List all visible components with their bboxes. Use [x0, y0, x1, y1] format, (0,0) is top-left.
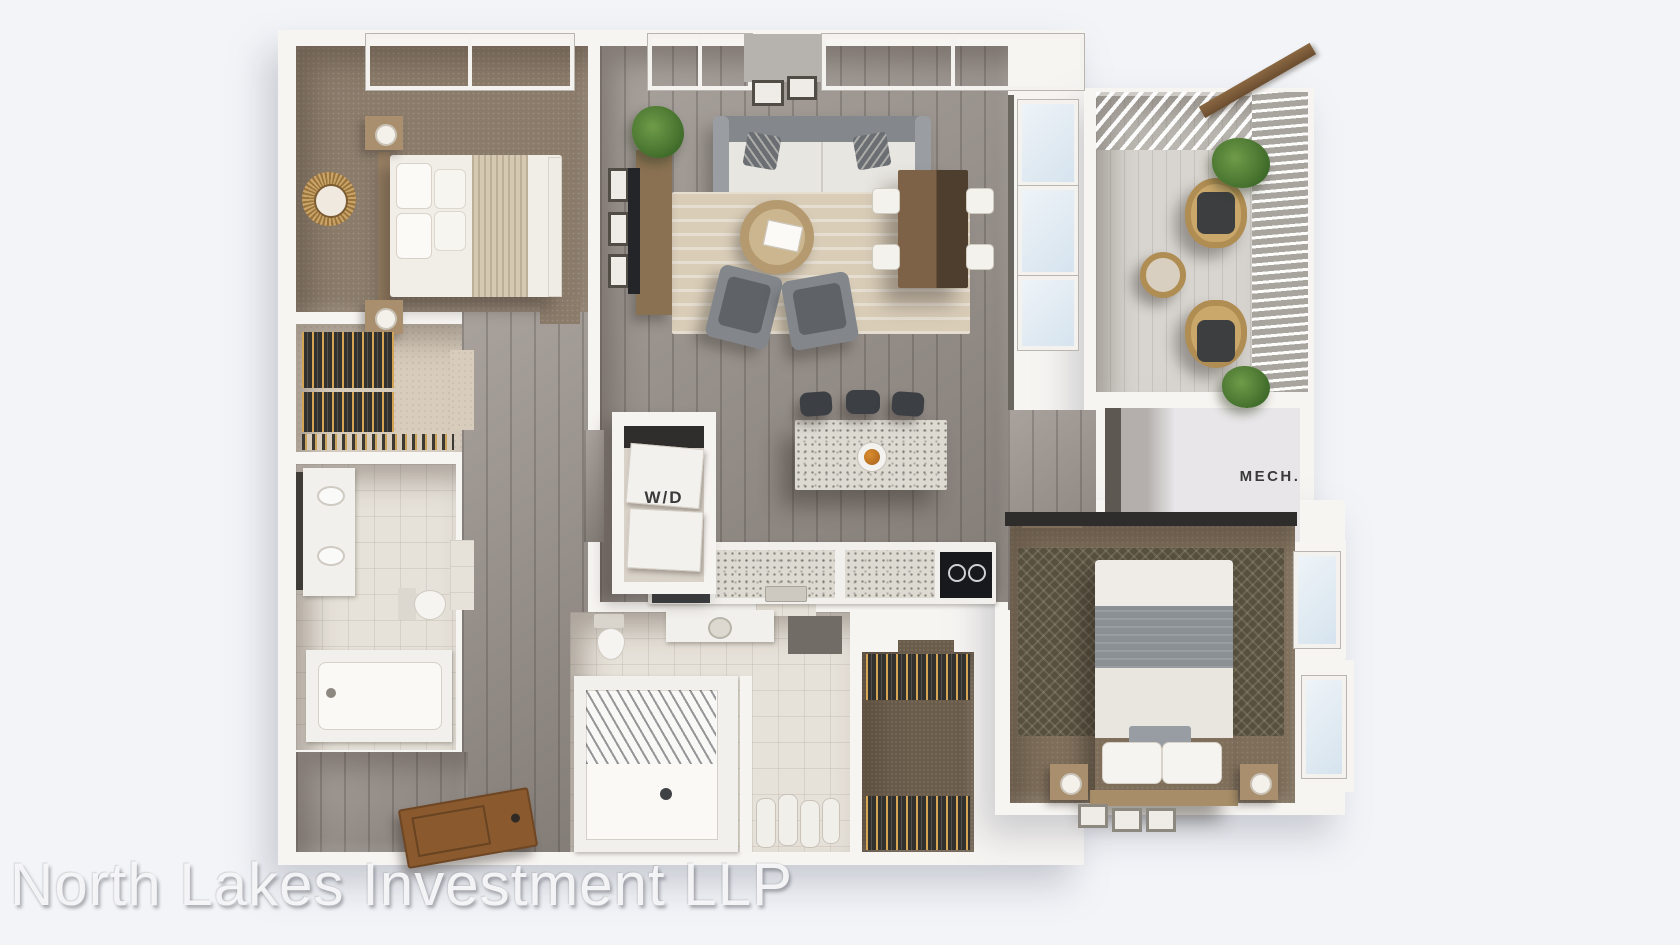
- kitchen-island: [795, 420, 947, 490]
- kitchen-sink-icon: [765, 586, 807, 602]
- balcony-door-window: [1018, 100, 1078, 186]
- sunburst-mirror-icon: [302, 172, 356, 226]
- bed1-footboard: [548, 157, 562, 297]
- bathtub2-glass-panel: [586, 690, 716, 764]
- coffee-table: [740, 200, 814, 274]
- armchair: [780, 271, 859, 352]
- dining-chair: [872, 188, 900, 214]
- bed2-pillow: [1162, 742, 1222, 784]
- burner: [968, 564, 986, 582]
- armchair-seat: [717, 275, 772, 334]
- lamp-icon: [1060, 773, 1082, 795]
- wall-art-frame: [608, 254, 629, 288]
- wicker-chair-cushion: [1197, 320, 1235, 362]
- toilet-icon: [594, 614, 624, 628]
- plant-icon: [632, 106, 684, 158]
- sink-icon: [317, 486, 345, 506]
- shower-head-icon: [660, 788, 672, 800]
- bed2-pillow: [1102, 742, 1162, 784]
- fruit-bowl-icon: [857, 442, 887, 472]
- closet1-hanging-clothes: [302, 332, 394, 388]
- leaning-frame: [1078, 804, 1108, 828]
- dining-chair: [966, 244, 994, 270]
- rolled-towel: [778, 794, 798, 846]
- sunburst-mirror-glass: [314, 184, 348, 218]
- bedroom2-window: [1302, 676, 1346, 778]
- wicker-chair: [1185, 300, 1247, 368]
- lamp-icon: [1250, 773, 1272, 795]
- bed2-foot-section: [1095, 560, 1233, 608]
- bed1: [390, 155, 562, 297]
- faucet-icon: [326, 688, 336, 698]
- wall-art-frame: [608, 168, 629, 202]
- bar-stool: [846, 390, 880, 414]
- nightstand2-right: [1240, 764, 1278, 800]
- plant-icon: [1222, 366, 1270, 408]
- shower-mat: [788, 616, 842, 654]
- armchair-seat: [792, 282, 847, 336]
- living-wall-header: [744, 34, 822, 82]
- throw-pillow: [852, 131, 891, 170]
- bathroom2-vanity: [666, 610, 774, 642]
- nightstand2-left: [1050, 764, 1088, 800]
- wall-art-frame: [787, 76, 817, 100]
- closet1-hanging-clothes: [302, 392, 394, 432]
- bathroom2-partition-wall: [740, 676, 752, 852]
- sink-icon: [317, 546, 345, 566]
- bed2: [1095, 560, 1233, 806]
- wicker-chair-cushion: [1197, 192, 1235, 234]
- tv-console: [636, 150, 672, 315]
- bed2-headboard: [1090, 790, 1238, 806]
- dining-table: [898, 170, 968, 288]
- tv-icon: [628, 168, 640, 294]
- floor-plan-rendering: W/D MECH.: [0, 0, 1680, 945]
- bedroom1-doorway: [540, 298, 580, 324]
- bathroom1-doorway: [450, 540, 474, 610]
- closet1-shoe-row: [302, 434, 454, 450]
- dining-chair: [872, 244, 900, 270]
- lamp-icon: [375, 308, 397, 330]
- bedroom1-window: [366, 34, 574, 90]
- leaning-frame: [1146, 808, 1176, 832]
- bed1-pillow: [396, 163, 432, 209]
- balcony-door-window: [1018, 276, 1078, 350]
- washer-dryer-label: W/D: [622, 488, 706, 508]
- burner: [948, 564, 966, 582]
- bed1-headboard: [378, 152, 390, 302]
- living-hall-opening: [584, 430, 604, 542]
- bathtub2: [574, 676, 738, 852]
- watermark-text: North Lakes Investment LLP: [10, 850, 793, 919]
- nightstand1-bottom: [365, 300, 403, 334]
- wicker-side-table: [1140, 252, 1186, 298]
- balcony-door-window: [1018, 186, 1078, 276]
- dining-chair: [966, 188, 994, 214]
- bar-stool: [891, 391, 925, 417]
- bathroom1-mirror: [296, 472, 303, 590]
- bed1-blanket: [472, 155, 528, 297]
- wicker-chair: [1185, 178, 1247, 248]
- living-right-wall-shadow: [1008, 95, 1014, 410]
- cooktop-icon: [940, 552, 992, 598]
- book: [763, 220, 804, 253]
- bed1-pillow: [434, 211, 466, 251]
- plant-icon: [1212, 138, 1270, 188]
- bed2-gray-blanket: [1095, 606, 1233, 668]
- living-window-right: [822, 34, 1084, 90]
- balcony-railing: [1252, 92, 1308, 392]
- rolled-towel: [800, 800, 820, 848]
- leaning-frame: [1112, 808, 1142, 832]
- nightstand1-top: [365, 116, 403, 150]
- walkin-closet-clothes-bottom: [866, 796, 970, 850]
- bathroom1-vanity: [303, 468, 355, 596]
- closet1-doorway: [450, 350, 474, 430]
- counter-terrazzo: [845, 550, 935, 598]
- living-window-left: [648, 34, 752, 90]
- bar-stool: [799, 391, 833, 417]
- rolled-towel: [756, 798, 776, 848]
- walkin-closet-clothes-top: [866, 654, 970, 700]
- wall-art-frame: [752, 80, 784, 106]
- bathtub1-basin: [318, 662, 442, 730]
- bedroom2-window: [1294, 552, 1340, 648]
- door-handle-icon: [510, 813, 520, 823]
- fruit: [864, 449, 880, 465]
- bed1-pillow: [434, 169, 466, 209]
- bed1-pillow: [396, 213, 432, 259]
- sink-icon: [708, 617, 732, 639]
- rolled-towel: [822, 798, 840, 844]
- throw-pillow: [742, 131, 781, 170]
- bathtub1: [306, 650, 452, 742]
- lamp-icon: [375, 124, 397, 146]
- wall-art-frame: [608, 212, 629, 246]
- mech-room-label: MECH.: [1190, 468, 1350, 485]
- dryer: [626, 508, 703, 572]
- bedroom2-accent-wall: [1005, 512, 1297, 526]
